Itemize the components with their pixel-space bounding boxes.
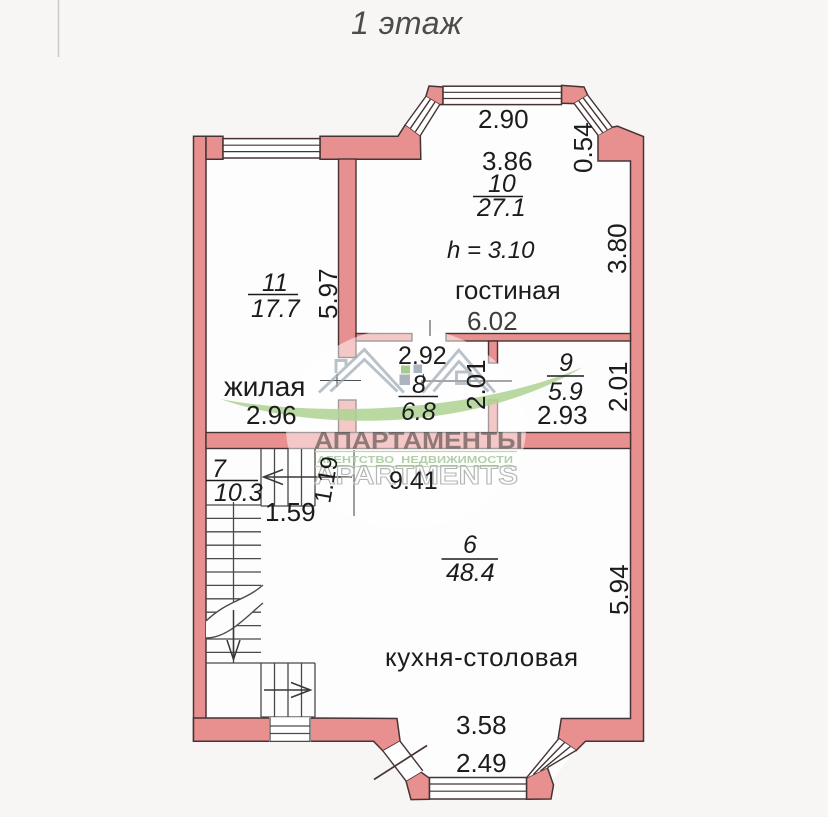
svg-text:АПАРТАМЕНТЫ: АПАРТАМЕНТЫ xyxy=(314,428,523,455)
svg-text:2.90: 2.90 xyxy=(478,104,529,134)
svg-text:5.94: 5.94 xyxy=(604,564,634,615)
svg-text:h = 3.10: h = 3.10 xyxy=(447,237,535,264)
svg-text:1.59: 1.59 xyxy=(265,497,316,527)
svg-text:2.96: 2.96 xyxy=(246,400,297,430)
svg-text:2.01: 2.01 xyxy=(603,361,633,412)
svg-text:17.7: 17.7 xyxy=(251,295,301,323)
svg-text:11: 11 xyxy=(262,269,288,297)
svg-text:27.1: 27.1 xyxy=(476,194,526,222)
svg-text:2.93: 2.93 xyxy=(537,400,588,430)
svg-text:кухня-столовая: кухня-столовая xyxy=(385,642,579,672)
svg-text:гостиная: гостиная xyxy=(455,275,561,305)
svg-text:48.4: 48.4 xyxy=(446,559,495,587)
svg-text:6.02: 6.02 xyxy=(467,306,518,336)
svg-text:3.80: 3.80 xyxy=(602,223,632,274)
svg-text:10.3: 10.3 xyxy=(214,479,263,507)
svg-text:1 этаж: 1 этаж xyxy=(351,5,464,41)
svg-text:9.41: 9.41 xyxy=(389,467,438,495)
svg-text:2.49: 2.49 xyxy=(456,748,507,778)
svg-text:0.54: 0.54 xyxy=(568,122,598,173)
svg-text:6.8: 6.8 xyxy=(401,398,436,426)
svg-text:5.97: 5.97 xyxy=(313,268,343,319)
svg-text:жилая: жилая xyxy=(224,371,305,402)
svg-text:3.58: 3.58 xyxy=(456,710,507,740)
svg-text:2.92: 2.92 xyxy=(398,342,447,370)
svg-text:9: 9 xyxy=(559,349,573,377)
svg-text:2.01: 2.01 xyxy=(461,359,491,410)
svg-text:8: 8 xyxy=(412,371,426,399)
svg-text:6: 6 xyxy=(463,531,477,559)
